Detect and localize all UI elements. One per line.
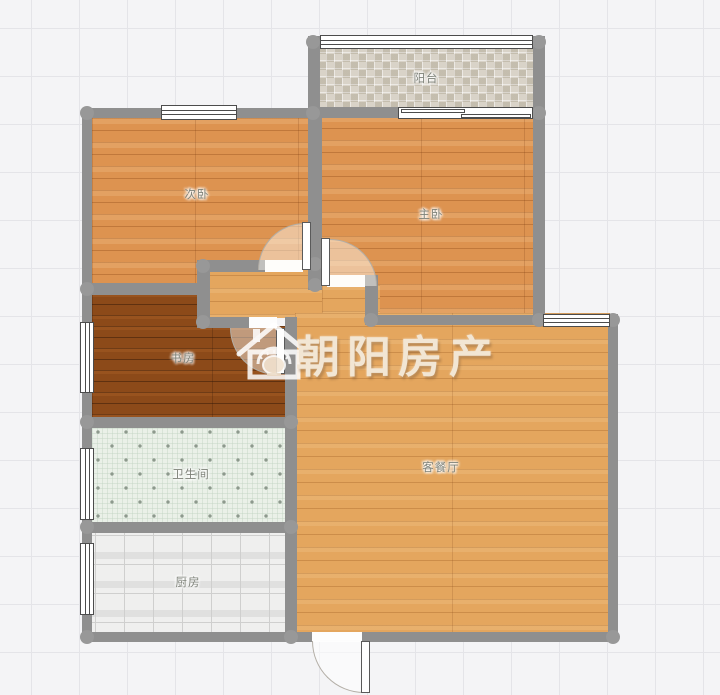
wall-right-upper [533, 36, 545, 325]
window-living-top [543, 314, 610, 327]
wall-joint [80, 106, 94, 120]
room-label-study: 书房 [171, 350, 196, 366]
door-leaf-bedroom2 [302, 222, 311, 270]
wall-joint [80, 415, 94, 429]
window-study-left [80, 322, 94, 393]
door-swing-entrance [312, 641, 364, 693]
wall-joint [606, 630, 620, 644]
sliding-door-panel [401, 109, 465, 113]
floorplan-canvas: 阳台 次卧 主卧 书房 卫生间 厨房 客餐厅 朝阳房产 [0, 0, 720, 695]
wall-joint [306, 106, 320, 120]
wall-bedroom2-bottom [210, 260, 265, 272]
wall-study-top [82, 283, 203, 295]
window-bedroom2-top [161, 105, 237, 120]
wall-joint [284, 630, 298, 644]
wall-kitchen-top [82, 522, 297, 533]
room-label-master: 主卧 [419, 206, 444, 222]
room-label-bathroom: 卫生间 [172, 466, 210, 482]
window-bathroom-left [80, 448, 94, 520]
wall-joint [284, 520, 298, 534]
sliding-door-balcony [398, 107, 533, 119]
wall-joint [196, 315, 210, 329]
wall-right-lower [608, 314, 618, 642]
room-label-kitchen: 厨房 [176, 574, 201, 590]
sliding-door-panel [461, 114, 531, 118]
window-balcony-top [320, 35, 533, 49]
wall-joint [532, 106, 546, 120]
wall-joint [80, 520, 94, 534]
door-leaf-master [321, 238, 330, 286]
wall-balcony-divider [320, 107, 398, 118]
wall-joint [308, 278, 322, 292]
room-label-bedroom2: 次卧 [185, 186, 210, 202]
window-kitchen-left [80, 543, 94, 615]
room-bedroom2-floor-ext [92, 118, 199, 285]
wall-joint [532, 35, 546, 49]
watermark-brand-text: 朝阳房产 [296, 321, 500, 385]
wall-joint [306, 35, 320, 49]
door-leaf-entrance [361, 641, 370, 693]
wall-joint [284, 415, 298, 429]
wall-joint [196, 259, 210, 273]
wall-bathroom-top [82, 417, 297, 428]
wall-joint [80, 282, 94, 296]
room-label-living: 客餐厅 [422, 459, 460, 475]
room-label-balcony: 阳台 [414, 70, 439, 86]
wall-joint [80, 630, 94, 644]
